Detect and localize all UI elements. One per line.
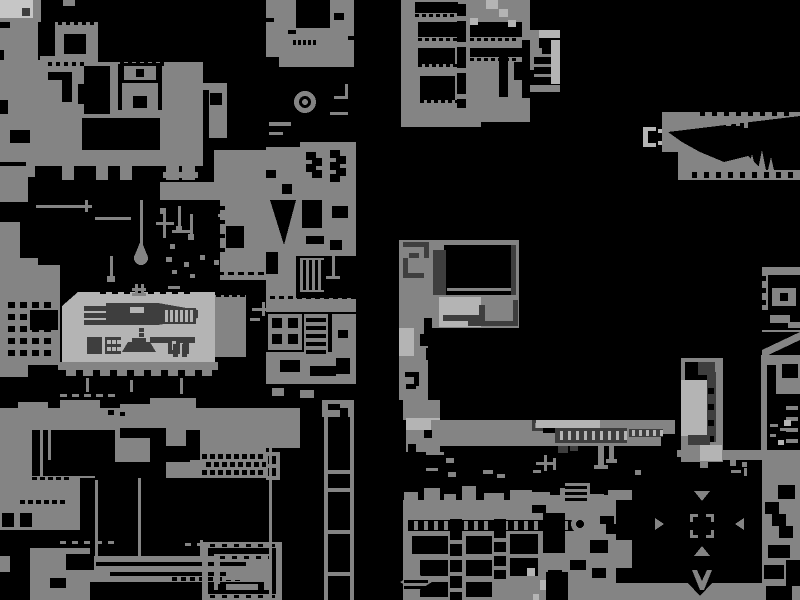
tick-run — [246, 544, 251, 547]
map-shape — [726, 118, 731, 126]
map-shape — [711, 530, 714, 538]
tick-run — [44, 302, 51, 308]
tick-run — [172, 577, 177, 581]
tick-run — [333, 296, 338, 299]
tick-run — [424, 521, 428, 530]
map-shape — [643, 127, 656, 131]
map-shape — [544, 455, 547, 471]
map-shape — [414, 372, 419, 386]
map-shape — [426, 348, 434, 360]
map-shape — [415, 2, 458, 13]
tick-run — [309, 260, 312, 290]
tick-run — [303, 260, 306, 290]
tick-run — [436, 14, 440, 17]
map-shape — [508, 20, 516, 27]
map-shape — [238, 205, 241, 215]
tick-run — [248, 272, 254, 275]
map-shape — [770, 315, 790, 323]
map-shape — [218, 214, 228, 217]
map-shape — [266, 18, 274, 22]
tick-run — [524, 521, 528, 530]
map-shape — [766, 586, 792, 600]
map-shape — [570, 560, 586, 570]
tick-run — [464, 521, 468, 530]
map-shape — [0, 100, 8, 114]
tick-run — [244, 556, 249, 559]
map-shape — [765, 502, 779, 514]
map-shape — [635, 470, 641, 475]
tick-run — [786, 406, 798, 410]
map-shape — [22, 8, 30, 16]
tick-run — [220, 556, 225, 559]
map-shape — [64, 34, 86, 54]
map-shape — [172, 270, 177, 274]
tick-run — [139, 333, 144, 337]
tick-run — [250, 454, 255, 459]
tick-run — [712, 112, 717, 116]
map-shape — [330, 174, 340, 182]
map-shape — [62, 158, 74, 180]
tick-run — [258, 470, 263, 475]
map-shape — [40, 430, 43, 476]
map-shape — [661, 420, 675, 434]
map-shape — [280, 360, 300, 372]
tick-run — [342, 296, 347, 299]
tick-run — [491, 38, 495, 41]
tick-run — [762, 300, 766, 305]
tick-run — [512, 58, 516, 61]
tick-run — [44, 500, 49, 504]
map-shape — [533, 470, 541, 473]
tick-run — [470, 58, 474, 61]
map-shape — [182, 344, 187, 357]
map-shape — [404, 580, 428, 583]
tick-run — [568, 431, 571, 440]
tick-run — [258, 454, 263, 459]
map-shape — [330, 112, 348, 115]
map-shape — [178, 206, 181, 226]
tick-run — [764, 172, 769, 178]
tick-run — [230, 462, 235, 467]
map-shape — [20, 513, 32, 527]
map-shape — [310, 366, 336, 376]
map-shape — [536, 420, 600, 428]
map-shape — [324, 488, 354, 492]
tick-run — [422, 14, 426, 17]
map-shape — [269, 122, 291, 126]
map-shape — [340, 408, 348, 417]
tick-run — [420, 100, 424, 103]
map-shape — [30, 310, 58, 330]
map-shape — [700, 462, 708, 468]
map-shape — [565, 483, 590, 500]
map-shape — [782, 364, 798, 378]
tick-run — [315, 260, 318, 290]
map-shape — [494, 538, 506, 542]
tick-run — [148, 290, 154, 294]
map-shape — [511, 245, 516, 295]
map-shape — [523, 70, 534, 85]
tick-run — [28, 500, 33, 504]
tick-run — [8, 326, 15, 332]
map-shape — [778, 485, 795, 499]
tick-run — [112, 290, 118, 294]
map-shape — [768, 545, 790, 558]
tick-run — [216, 294, 221, 297]
map-shape — [48, 430, 51, 460]
tick-run — [226, 454, 231, 459]
tick-run — [218, 272, 224, 275]
tick-run — [72, 394, 79, 397]
tick-run — [789, 456, 800, 459]
map-shape — [266, 408, 300, 448]
map-shape — [768, 135, 779, 138]
map-shape — [543, 513, 565, 553]
map-shape — [532, 492, 550, 500]
map-shape — [302, 99, 308, 105]
tick-run — [82, 22, 86, 25]
tick-run — [210, 544, 215, 547]
tick-run — [234, 595, 239, 598]
map-shape — [312, 170, 322, 178]
map-shape — [499, 57, 508, 97]
tick-run — [100, 290, 106, 294]
map-shape — [332, 252, 335, 278]
tick-run — [84, 541, 90, 544]
tick-run — [210, 454, 215, 459]
tick-run — [112, 347, 116, 351]
tick-run — [52, 500, 57, 504]
map-shape — [606, 459, 617, 463]
map-shape — [96, 158, 108, 180]
tick-run — [100, 370, 110, 376]
map-shape — [95, 217, 131, 220]
map-shape — [160, 182, 266, 200]
map-shape — [424, 242, 429, 258]
map-shape — [87, 337, 102, 354]
map-shape — [186, 430, 200, 460]
tick-run — [84, 394, 91, 397]
tick-run — [32, 338, 39, 344]
tick-run — [222, 595, 227, 598]
map-shape — [226, 226, 244, 248]
map-shape — [761, 355, 767, 455]
tick-run — [351, 296, 356, 299]
map-shape — [553, 458, 556, 470]
map-shape — [184, 262, 189, 267]
map-shape — [210, 93, 222, 105]
tick-run — [270, 296, 275, 299]
map-shape — [450, 556, 462, 560]
tick-run — [760, 112, 765, 116]
tick-run — [446, 64, 450, 67]
tick-run — [60, 394, 67, 397]
map-shape — [780, 428, 788, 431]
tick-run — [202, 454, 207, 459]
tick-run — [32, 350, 39, 356]
map-shape — [608, 490, 632, 500]
map-shape — [188, 234, 194, 240]
tick-run — [425, 38, 429, 41]
tick-run — [474, 521, 478, 530]
map-shape — [565, 486, 587, 489]
map-shape — [494, 566, 506, 570]
tick-run — [608, 431, 611, 440]
map-shape — [648, 112, 662, 122]
map-shape — [214, 260, 219, 265]
map-shape — [470, 18, 478, 25]
map-shape — [262, 302, 265, 316]
tick-run — [505, 58, 509, 61]
map-shape — [0, 530, 80, 540]
map-shape — [565, 498, 587, 501]
tick-run — [220, 206, 225, 210]
map-shape — [120, 412, 125, 416]
tick-run — [58, 22, 62, 25]
map-shape — [780, 293, 788, 301]
map-shape — [58, 362, 218, 370]
map-shape — [744, 118, 748, 128]
map-shape — [150, 398, 196, 410]
map-shape — [534, 54, 551, 57]
tick-run — [168, 370, 178, 376]
tick-run — [646, 430, 649, 436]
tick-run — [505, 38, 509, 41]
tick-run — [470, 38, 474, 41]
map-shape — [606, 524, 616, 534]
tick-run — [172, 290, 178, 294]
world-map-viewport[interactable] — [0, 0, 800, 600]
tick-run — [491, 58, 495, 61]
map-shape — [110, 256, 113, 276]
map-shape — [252, 308, 268, 311]
map-shape — [594, 465, 608, 469]
map-shape — [120, 158, 132, 180]
tick-run — [90, 22, 94, 25]
tick-run — [181, 577, 186, 581]
tick-run — [434, 100, 438, 103]
tick-run — [453, 64, 457, 67]
tick-run — [441, 100, 445, 103]
tick-run — [210, 470, 215, 475]
map-shape — [688, 435, 710, 445]
map-shape — [418, 22, 458, 37]
map-shape — [404, 492, 418, 500]
tick-run — [117, 340, 121, 344]
tick-run — [107, 347, 111, 351]
map-shape — [403, 258, 408, 278]
map-shape — [107, 276, 115, 282]
tick-run — [60, 500, 65, 504]
tick-run — [321, 260, 324, 290]
tick-run — [306, 350, 326, 354]
map-shape — [62, 80, 72, 102]
tick-run — [20, 302, 27, 308]
map-shape — [399, 328, 414, 356]
map-shape — [134, 251, 148, 265]
tick-run — [592, 431, 595, 440]
map-shape — [0, 162, 26, 166]
tick-run — [306, 296, 311, 299]
map-shape — [48, 72, 72, 80]
tick-run — [108, 541, 114, 544]
tick-run — [185, 310, 188, 322]
map-shape — [457, 68, 466, 73]
tick-run — [306, 342, 326, 346]
map-shape — [173, 344, 178, 357]
map-shape — [133, 96, 147, 108]
map-shape — [525, 85, 560, 92]
map-shape — [770, 434, 776, 437]
map-shape — [63, 0, 75, 6]
map-shape — [784, 420, 791, 426]
map-shape — [36, 205, 92, 208]
map-shape — [609, 445, 614, 461]
tick-run — [56, 62, 60, 66]
map-shape — [731, 470, 741, 473]
map-shape — [0, 176, 28, 202]
tick-run — [117, 370, 127, 376]
tick-run — [220, 220, 225, 224]
tick-run — [660, 430, 663, 436]
vault-chamber — [444, 245, 514, 295]
tick-run — [232, 556, 237, 559]
map-shape — [497, 474, 505, 478]
tick-run — [208, 577, 213, 581]
map-shape — [404, 586, 428, 589]
map-shape — [0, 238, 17, 241]
map-shape — [470, 48, 526, 57]
tick-run — [202, 370, 212, 376]
tick-run — [184, 290, 190, 294]
tick-run — [716, 172, 721, 178]
tick-run — [455, 100, 459, 103]
map-shape — [324, 470, 354, 474]
tick-run — [108, 394, 115, 397]
map-shape — [486, 0, 498, 9]
tick-run — [112, 340, 116, 344]
tick-run — [160, 290, 166, 294]
tick-run — [8, 314, 15, 320]
map-shape — [226, 566, 258, 580]
tick-run — [315, 296, 320, 299]
tick-run — [308, 40, 311, 45]
map-shape — [527, 568, 535, 576]
map-shape — [690, 530, 693, 538]
tick-run — [180, 310, 183, 322]
tick-run — [772, 112, 777, 116]
map-shape — [288, 318, 298, 328]
map-shape — [82, 118, 160, 150]
tick-run — [32, 477, 37, 480]
tick-run — [692, 172, 697, 178]
tick-run — [242, 470, 247, 475]
map-shape — [78, 84, 92, 104]
tick-run — [222, 462, 227, 467]
tick-run — [484, 58, 488, 61]
map-shape — [513, 300, 518, 326]
tick-run — [324, 296, 329, 299]
tick-run — [279, 296, 284, 299]
tick-run — [740, 172, 745, 178]
tick-run — [222, 544, 227, 547]
tick-run — [96, 541, 102, 544]
tick-run — [48, 477, 53, 480]
map-shape — [444, 494, 456, 500]
tick-run — [185, 370, 195, 376]
tick-run — [704, 172, 709, 178]
map-shape — [10, 130, 30, 143]
map-shape — [446, 458, 454, 463]
map-shape — [266, 252, 278, 274]
map-shape — [744, 468, 747, 476]
tick-run — [20, 500, 25, 504]
tick-run — [185, 543, 191, 546]
map-shape — [764, 565, 784, 579]
map-shape — [190, 274, 195, 278]
map-shape — [0, 556, 10, 572]
tick-run — [226, 470, 231, 475]
map-shape — [300, 390, 314, 398]
map-shape — [772, 514, 786, 526]
tick-run — [414, 521, 418, 530]
tick-run — [752, 172, 757, 178]
tick-run — [425, 64, 429, 67]
tick-run — [736, 112, 741, 116]
map-shape — [296, 230, 356, 256]
tick-run — [8, 302, 15, 308]
tick-run — [20, 338, 27, 344]
tick-run — [83, 370, 93, 376]
tick-run — [313, 40, 316, 45]
map-shape — [742, 462, 747, 467]
tick-run — [776, 172, 781, 178]
tick-run — [477, 38, 481, 41]
map-shape — [590, 540, 608, 553]
tick-run — [789, 472, 800, 475]
map-shape — [778, 440, 784, 445]
map-shape — [86, 378, 89, 392]
map-shape — [179, 172, 198, 178]
map-shape — [288, 30, 296, 34]
map-shape — [0, 115, 38, 177]
tick-run — [240, 294, 245, 297]
tick-run — [44, 350, 51, 356]
tick-run — [616, 431, 619, 440]
map-shape — [326, 276, 340, 279]
tick-run — [297, 296, 302, 299]
tick-run — [8, 338, 15, 344]
tick-run — [584, 431, 587, 440]
map-shape — [600, 516, 614, 524]
tick-run — [453, 38, 457, 41]
map-shape — [324, 572, 354, 576]
map-shape — [203, 90, 209, 138]
map-shape — [592, 568, 606, 578]
tick-run — [432, 64, 436, 67]
tick-run — [242, 454, 247, 459]
tick-run — [56, 477, 61, 480]
tick-run — [210, 595, 215, 598]
tick-run — [484, 38, 488, 41]
map-shape — [200, 255, 205, 260]
map-shape — [551, 40, 560, 84]
map-shape — [533, 594, 539, 600]
tick-run — [477, 58, 481, 61]
tick-run — [238, 272, 244, 275]
tick-run — [288, 296, 293, 299]
map-shape — [180, 378, 183, 394]
